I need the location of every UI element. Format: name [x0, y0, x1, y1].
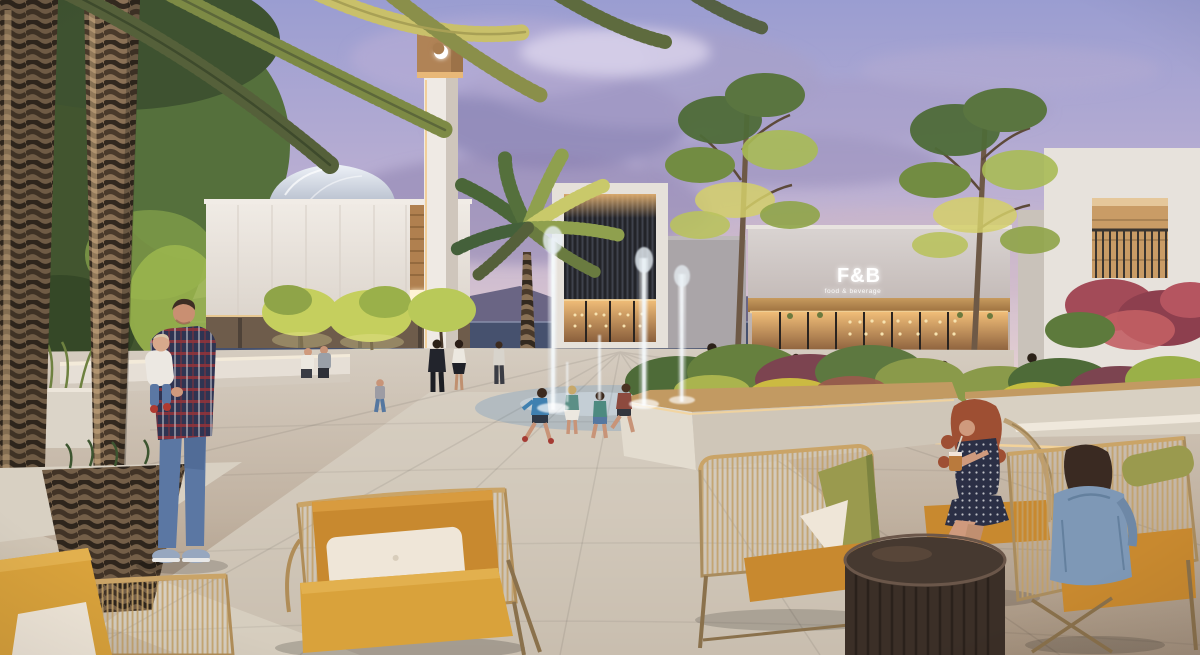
architectural-render-dusk-plaza: F&B food & beverage [0, 0, 1200, 655]
vignette-overlay [0, 0, 1200, 655]
